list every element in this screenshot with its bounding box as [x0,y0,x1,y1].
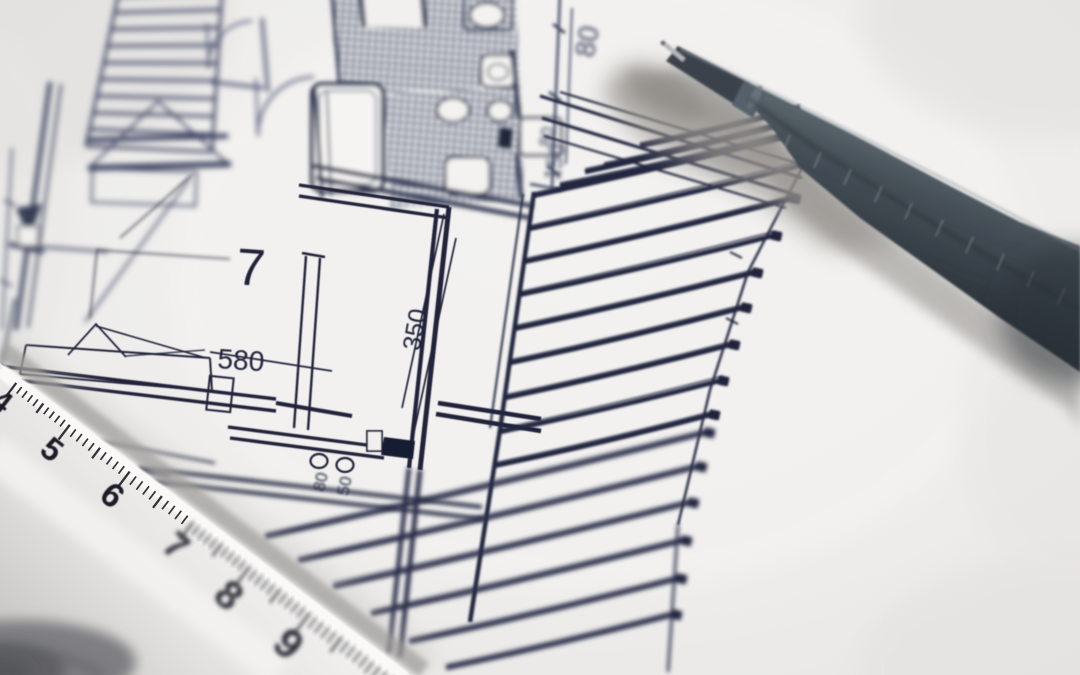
svg-text:80: 80 [569,23,605,59]
svg-text:7: 7 [234,238,267,298]
